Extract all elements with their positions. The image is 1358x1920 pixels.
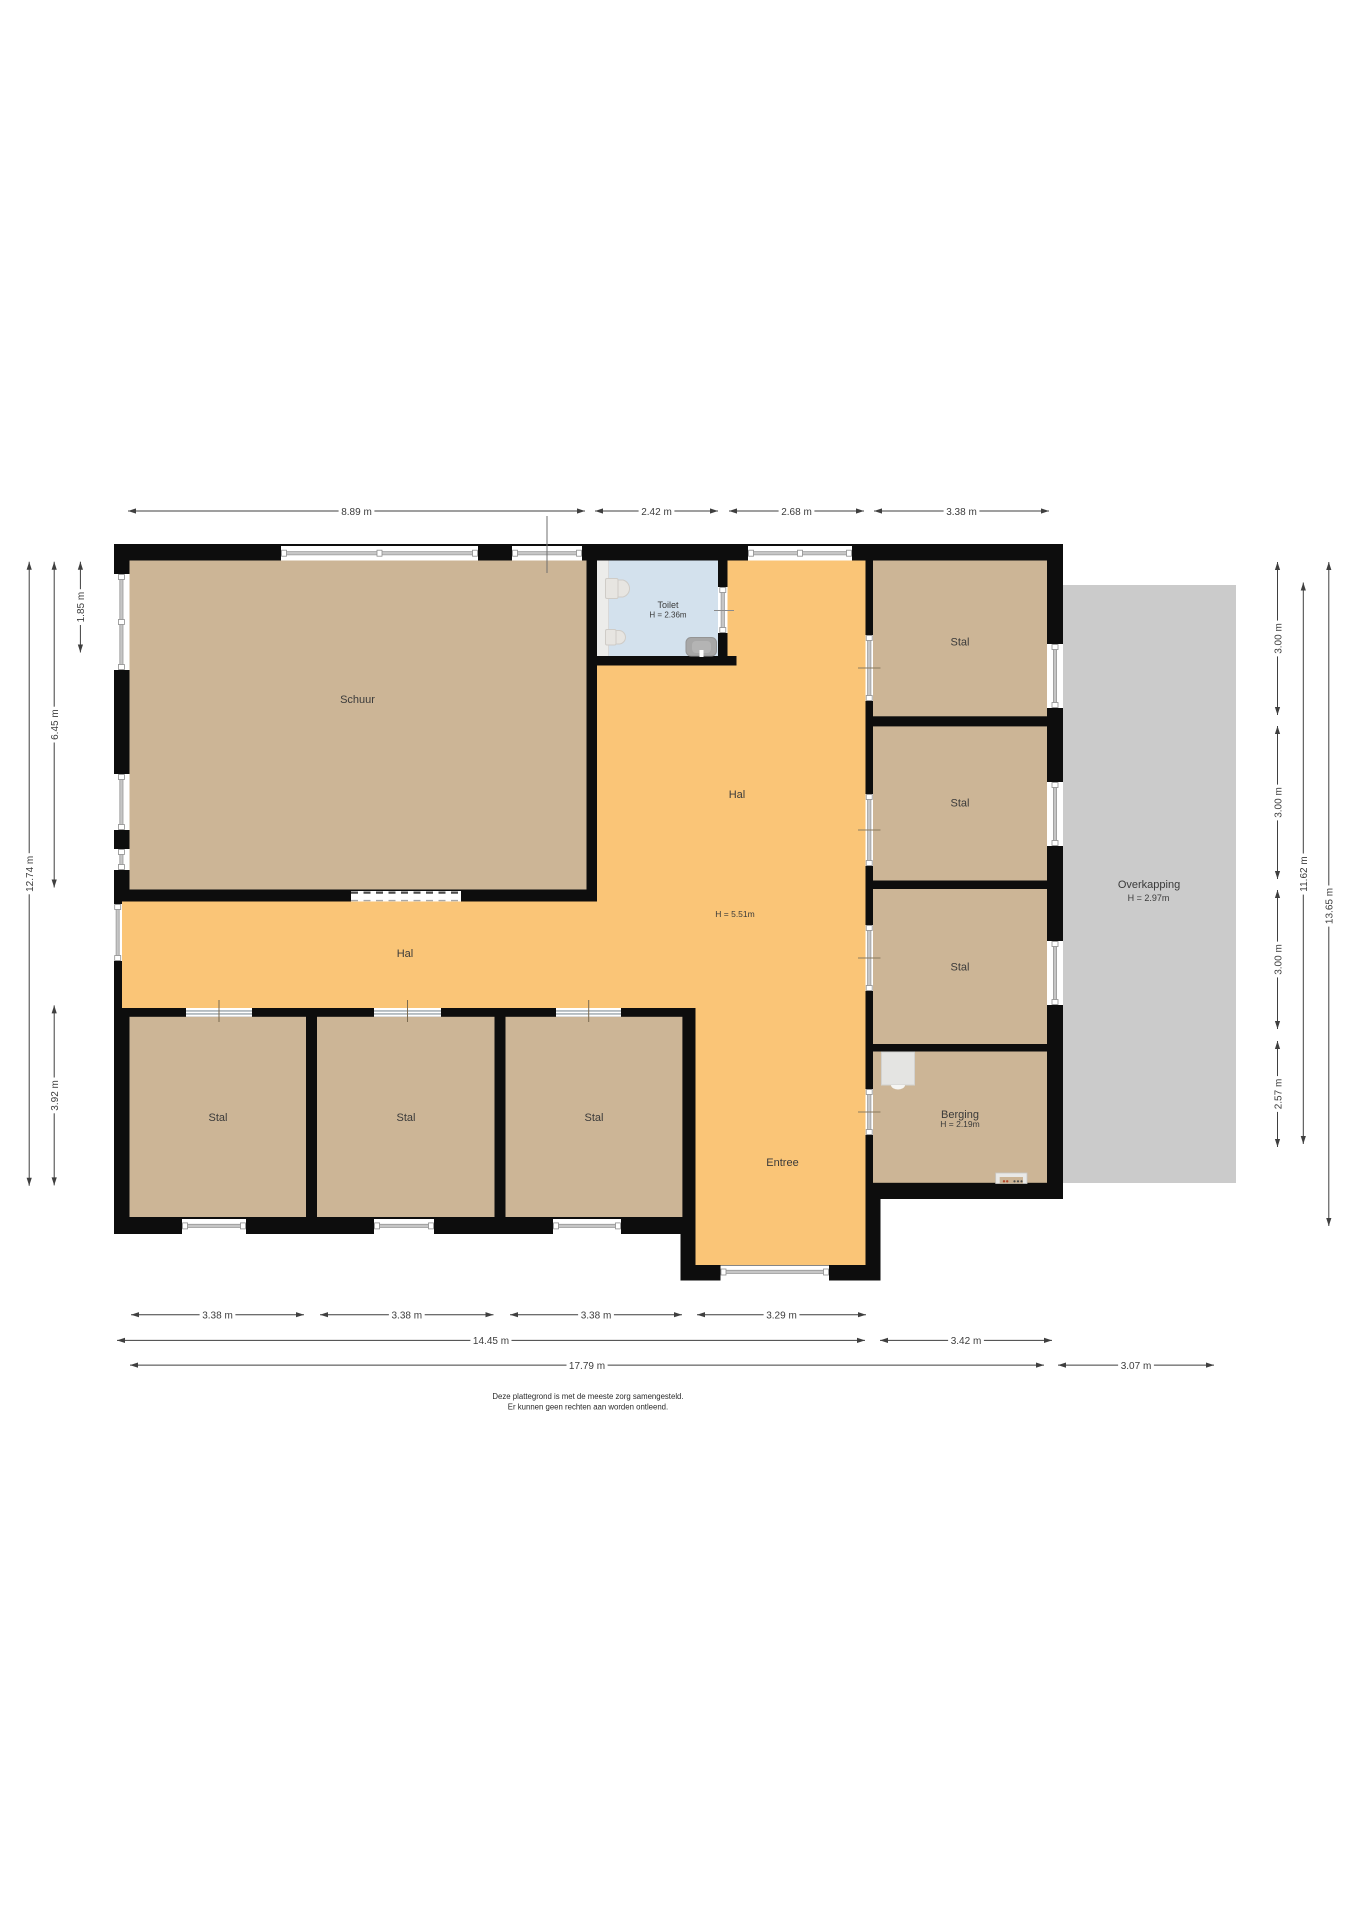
svg-text:Entree: Entree [766, 1157, 798, 1169]
svg-text:H = 2.19m: H = 2.19m [940, 1119, 979, 1129]
svg-text:Er kunnen geen rechten aan wor: Er kunnen geen rechten aan worden ontlee… [508, 1403, 668, 1412]
svg-text:3.38 m: 3.38 m [946, 507, 977, 518]
svg-text:Hal: Hal [729, 789, 746, 801]
svg-text:3.42 m: 3.42 m [951, 1336, 982, 1347]
svg-text:8.89 m: 8.89 m [341, 507, 372, 518]
svg-text:H = 5.51m: H = 5.51m [715, 909, 754, 919]
svg-text:H = 2.97m: H = 2.97m [1128, 893, 1170, 903]
svg-text:Stal: Stal [951, 637, 970, 649]
svg-text:3.38 m: 3.38 m [392, 1311, 423, 1322]
svg-text:Toilet: Toilet [657, 600, 679, 610]
svg-text:Hal: Hal [397, 948, 414, 960]
svg-text:2.42 m: 2.42 m [641, 507, 672, 518]
svg-text:Stal: Stal [585, 1112, 604, 1124]
svg-text:17.79 m: 17.79 m [569, 1361, 605, 1372]
svg-text:6.45 m: 6.45 m [50, 709, 61, 740]
svg-text:3.00 m: 3.00 m [1273, 623, 1284, 654]
svg-text:3.38 m: 3.38 m [581, 1311, 612, 1322]
svg-text:12.74 m: 12.74 m [25, 856, 36, 892]
svg-text:3.00 m: 3.00 m [1273, 944, 1284, 975]
svg-text:2.57 m: 2.57 m [1273, 1079, 1284, 1110]
svg-text:Stal: Stal [209, 1112, 228, 1124]
svg-text:Schuur: Schuur [340, 694, 375, 706]
svg-text:11.62 m: 11.62 m [1299, 856, 1310, 891]
svg-text:2.68 m: 2.68 m [781, 507, 812, 518]
svg-text:14.45 m: 14.45 m [473, 1336, 509, 1347]
svg-text:1.85 m: 1.85 m [76, 592, 87, 623]
svg-text:Stal: Stal [951, 962, 970, 974]
svg-text:3.29 m: 3.29 m [766, 1311, 797, 1322]
svg-text:H = 2.36m: H = 2.36m [649, 611, 686, 620]
svg-text:Stal: Stal [951, 798, 970, 810]
svg-text:Deze plattegrond is met de mee: Deze plattegrond is met de meeste zorg s… [492, 1392, 683, 1401]
svg-text:13.65 m: 13.65 m [1325, 888, 1336, 924]
svg-text:3.00 m: 3.00 m [1273, 787, 1284, 818]
svg-text:Overkapping: Overkapping [1118, 879, 1180, 891]
svg-text:Stal: Stal [397, 1112, 416, 1124]
svg-text:3.07 m: 3.07 m [1121, 1361, 1152, 1372]
svg-text:3.92 m: 3.92 m [50, 1080, 61, 1111]
svg-text:3.38 m: 3.38 m [202, 1311, 233, 1322]
